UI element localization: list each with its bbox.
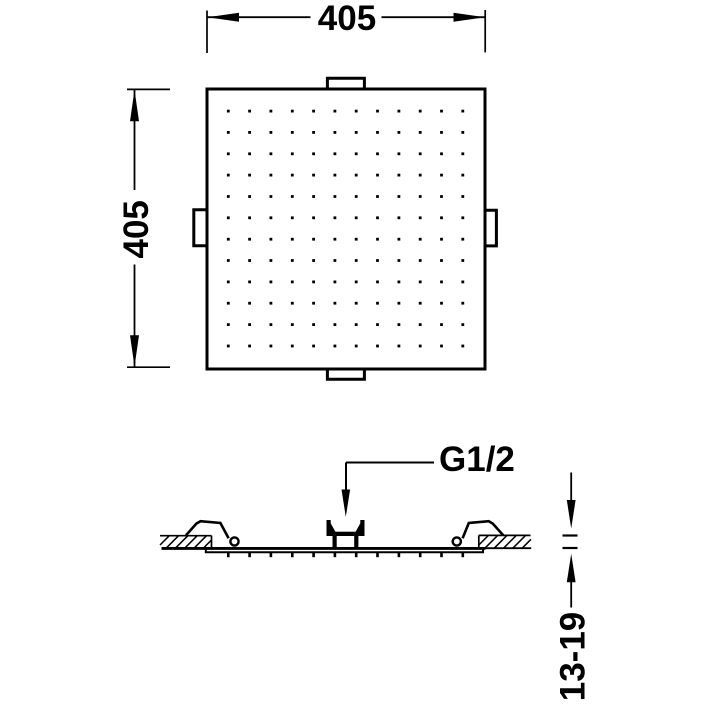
- svg-text:405: 405: [117, 200, 156, 258]
- svg-text:G1/2: G1/2: [439, 440, 515, 479]
- svg-text:405: 405: [318, 0, 376, 38]
- svg-text:13-19: 13-19: [553, 612, 592, 702]
